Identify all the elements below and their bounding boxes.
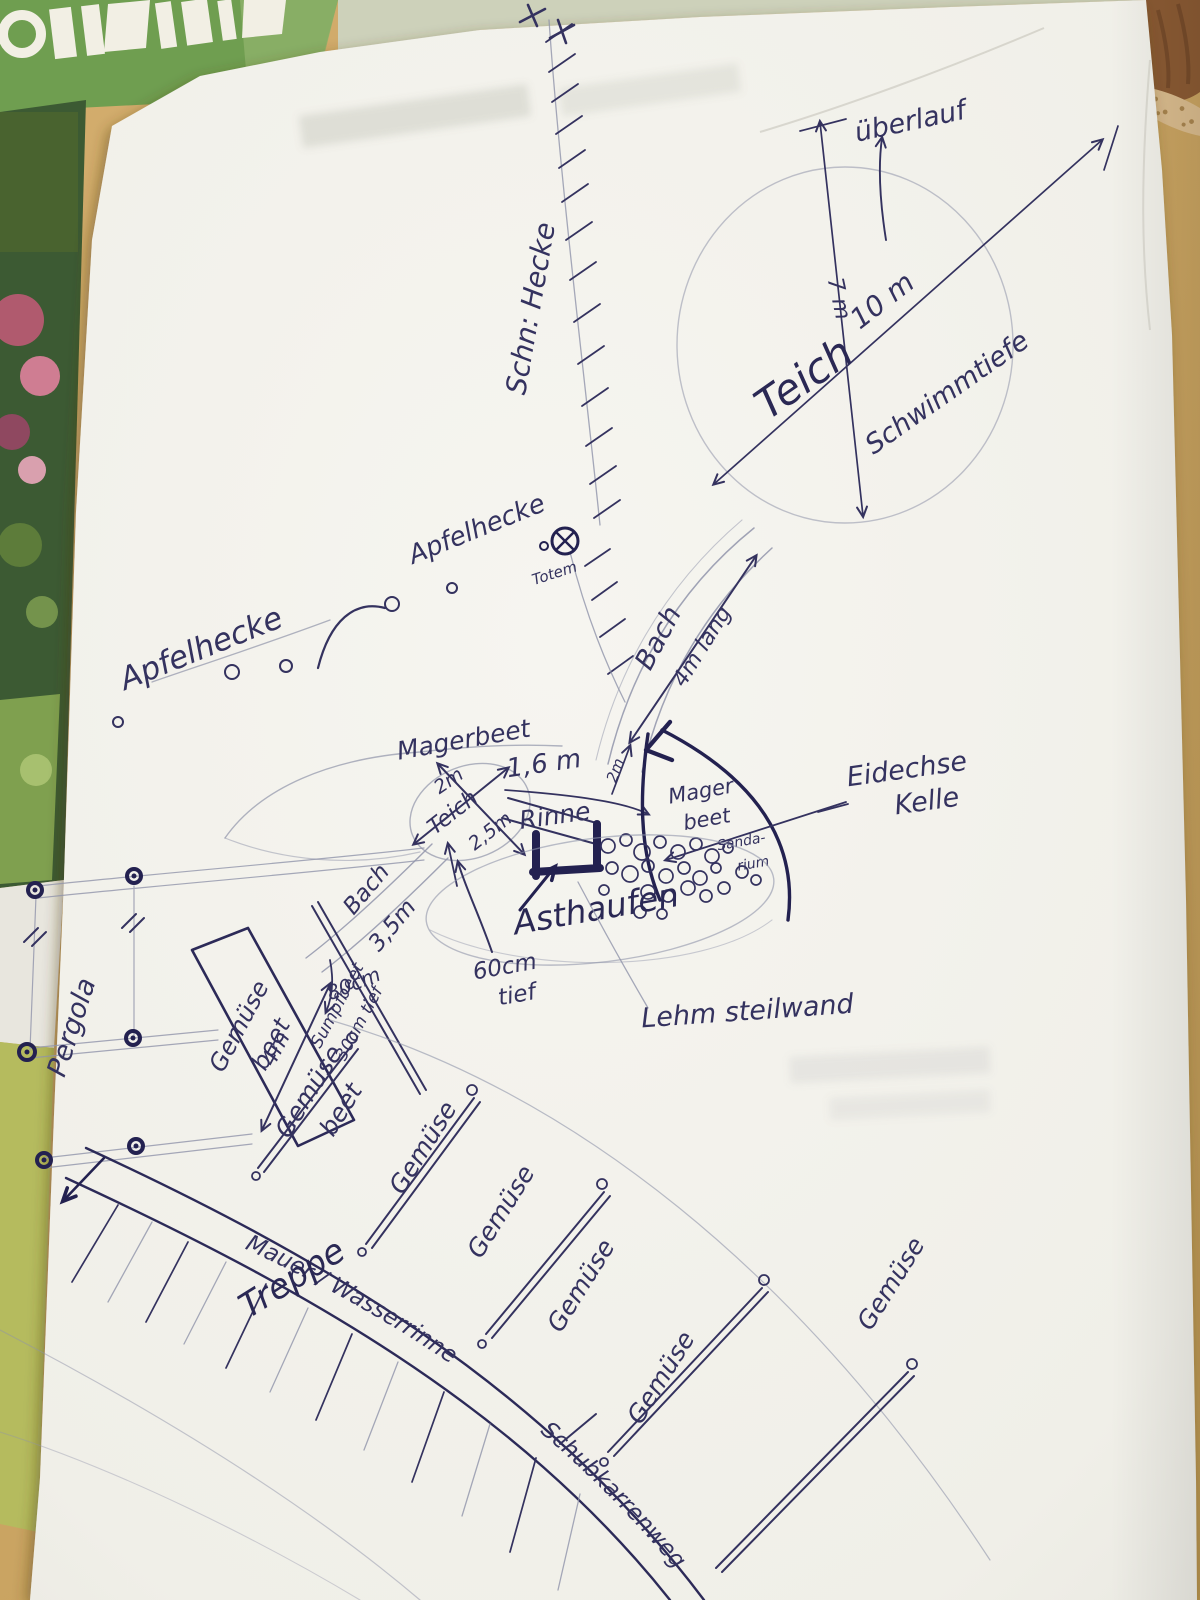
garden-plan-sketch: 7 m 10 m Teich Schwimmtiefe überlauf Sch… (0, 0, 1200, 1600)
paper-sheet (30, 0, 1200, 1600)
photo-of-hand-drawn-garden-plan: 7 m 10 m Teich Schwimmtiefe überlauf Sch… (0, 0, 1200, 1600)
magazine-white-edge (0, 880, 64, 1048)
